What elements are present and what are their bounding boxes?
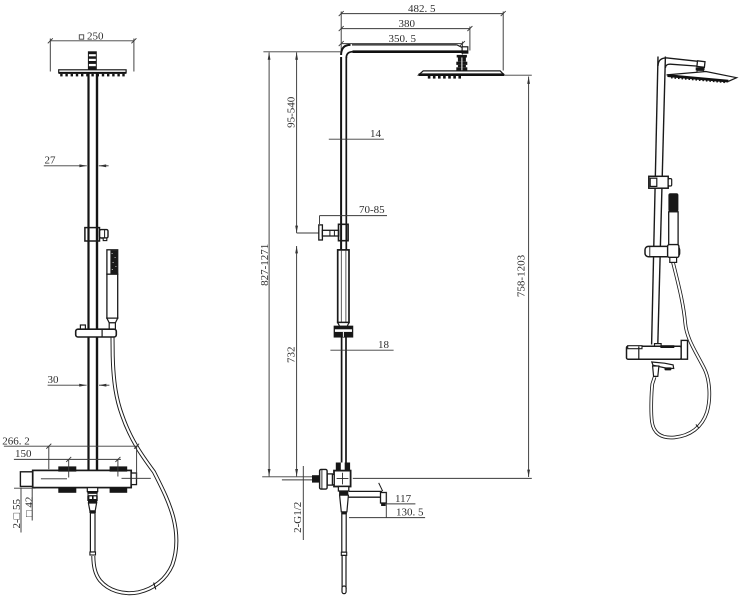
svg-text:350. 5: 350. 5: [389, 33, 417, 45]
svg-text:380: 380: [399, 18, 416, 30]
svg-text:27: 27: [45, 155, 57, 167]
svg-text:2-G1/2: 2-G1/2: [292, 502, 304, 533]
svg-text:266. 2: 266. 2: [2, 435, 30, 447]
svg-text:14: 14: [370, 128, 382, 140]
svg-text:732: 732: [285, 347, 297, 364]
svg-text:482. 5: 482. 5: [408, 3, 436, 15]
svg-text:□ 42: □ 42: [24, 497, 36, 517]
svg-text:150: 150: [15, 448, 32, 460]
svg-text:70-85: 70-85: [359, 204, 385, 216]
svg-text:30: 30: [48, 374, 60, 386]
svg-text:130. 5: 130. 5: [396, 506, 424, 518]
svg-text:2-□ 55: 2-□ 55: [11, 498, 23, 528]
svg-text:758-1203: 758-1203: [516, 254, 528, 297]
svg-text:117: 117: [395, 493, 412, 505]
svg-text:18: 18: [378, 339, 390, 351]
svg-text:95-540: 95-540: [285, 96, 297, 128]
svg-text:827-1271: 827-1271: [259, 244, 271, 286]
